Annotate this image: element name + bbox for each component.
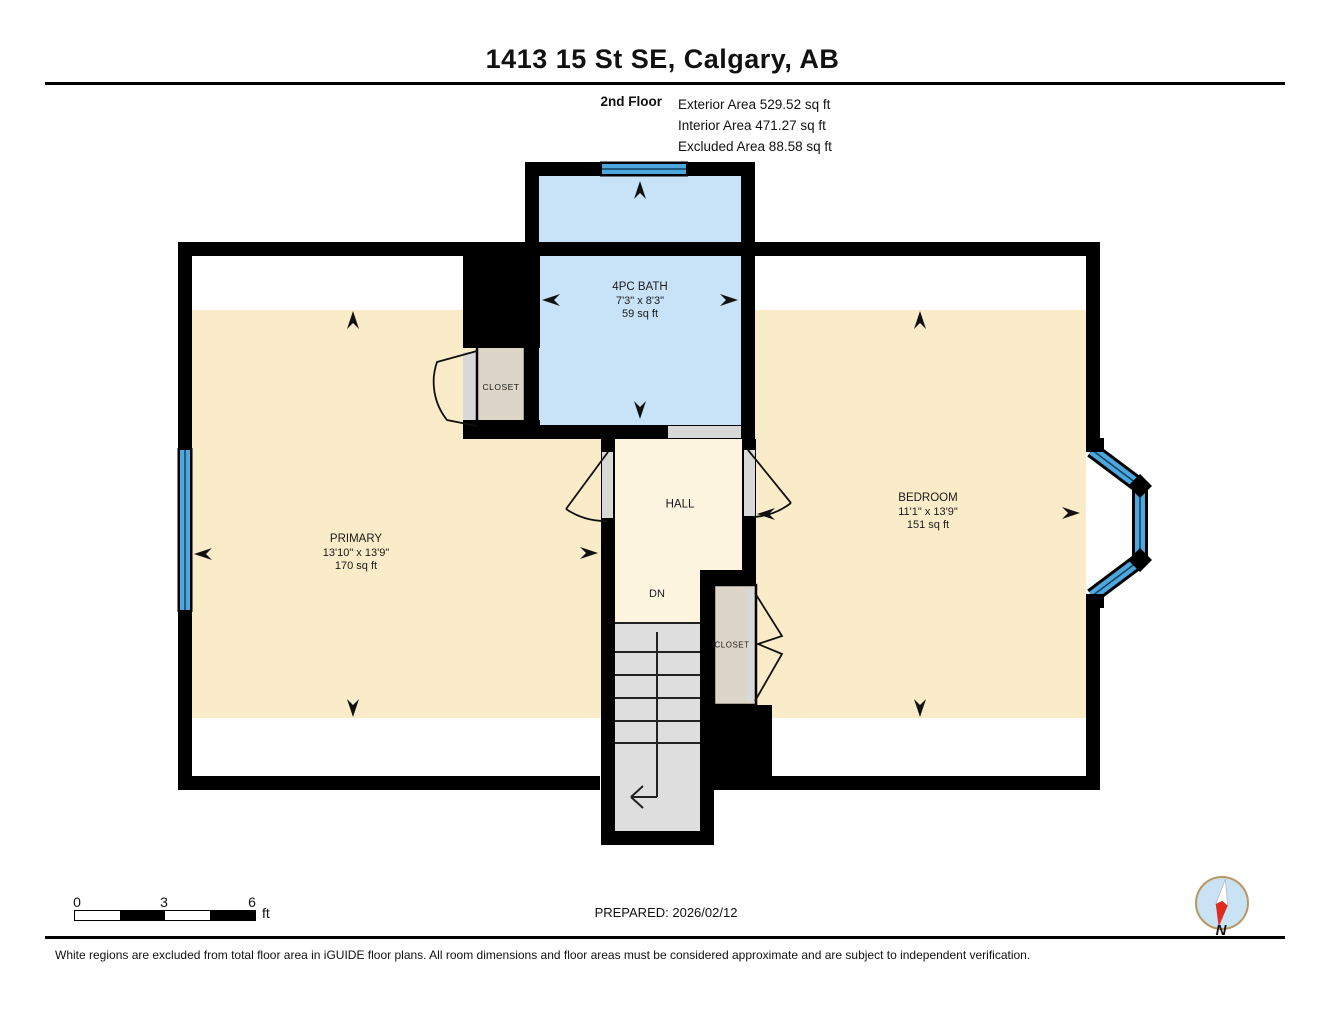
floor-plan-page: 1413 15 St SE, Calgary, AB 2nd Floor Ext… [0,0,1325,1024]
stairs-down-label: DN [649,588,665,600]
hall-bedroom-door-opening [744,450,755,516]
prepared-date: PREPARED: 2026/02/12 [400,905,932,920]
bath-door-opening [668,426,741,438]
scale-tick-3: 3 [160,894,168,910]
closet-bedroom-label: CLOSET [714,641,749,650]
scale-tick-6: 6 [248,894,256,910]
bath-label: 4PC BATH 7'3" x 8'3" 59 sq ft [612,281,667,322]
scale-bar-segments [74,910,256,921]
closet-bath-label: CLOSET [482,382,519,392]
bedroom-label: BEDROOM 11'1" x 13'9" 151 sq ft [898,492,958,533]
scale-tick-0: 0 [73,894,81,910]
footer-divider [45,936,1285,939]
hall-label: HALL [666,498,695,512]
disclaimer-text: White regions are excluded from total fl… [55,948,1155,962]
scale-bar-unit: ft [262,905,270,921]
primary-label: PRIMARY 13'10" x 13'9" 170 sq ft [323,533,389,574]
hall-primary-door-opening [602,452,613,518]
floor-plan-drawing [0,0,1325,1024]
